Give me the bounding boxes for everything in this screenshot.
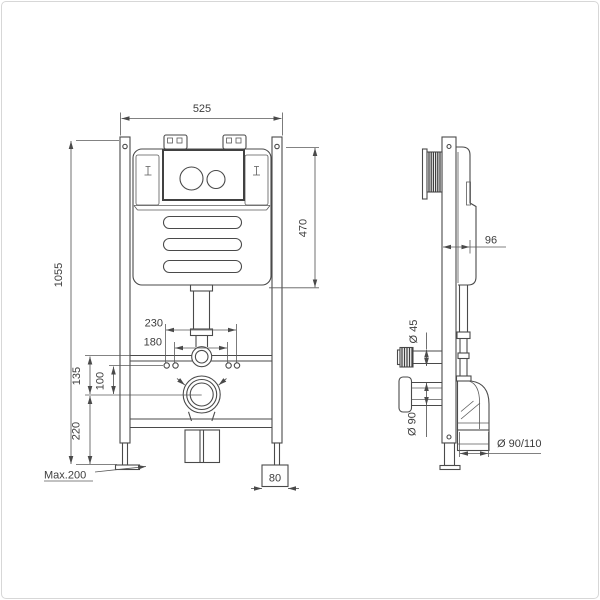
- elbow-base: [458, 430, 490, 451]
- dim-label-180: 180: [144, 337, 162, 349]
- fixing-bolt: [173, 363, 178, 368]
- dim-label-80: 80: [269, 473, 281, 485]
- dim-label-100: 100: [95, 372, 107, 390]
- frame-rail-right: [272, 137, 282, 443]
- dim-label-230: 230: [145, 318, 163, 330]
- foot-plate-side: [440, 466, 460, 470]
- front-view: 525 1055 470 230 180: [44, 103, 319, 489]
- foot-leg-left: [123, 443, 128, 465]
- pipe-connector-outer: [192, 347, 212, 367]
- outlet-arrow-left: [177, 379, 185, 386]
- outlet-arrow-right: [219, 379, 227, 386]
- dim-label-470: 470: [298, 219, 310, 237]
- cistern-side-outline: [456, 147, 476, 285]
- mounting-tab-left: [164, 135, 187, 149]
- frame-rail-side: [442, 137, 456, 443]
- dim-label-1055: 1055: [53, 263, 65, 287]
- collar-flange: [423, 149, 428, 199]
- outlet-ring-outer: [183, 376, 220, 413]
- technical-drawing-page: 525 1055 470 230 180: [0, 0, 600, 600]
- pipe-coupling-side: [457, 332, 470, 339]
- dim-label-d90-110: Ø 90/110: [497, 438, 541, 450]
- pipe-flange: [191, 285, 213, 291]
- cistern-front: [133, 135, 271, 285]
- dim-label-135: 135: [71, 367, 83, 385]
- outlet-connector: [399, 377, 442, 412]
- dim-label-d90: Ø 90: [407, 412, 419, 436]
- pipe-joint-side: [458, 353, 469, 359]
- water-inlet-connector: [398, 348, 443, 368]
- fixing-bolt: [234, 363, 239, 368]
- dim-label-d45: Ø 45: [408, 320, 420, 344]
- foot-leg-right: [275, 443, 280, 466]
- outlet-flange: [399, 377, 412, 412]
- dim-label-96: 96: [485, 235, 497, 247]
- flush-plate: [163, 150, 244, 200]
- frame-rail-left: [120, 137, 130, 443]
- dimensions-side: 96 Ø 45 Ø 90 Ø 90/110: [407, 235, 542, 458]
- dim-label-220: 220: [71, 422, 83, 440]
- dim-label-max-foot: Max.200: [44, 470, 86, 482]
- waste-elbow: [457, 376, 490, 451]
- mounting-tab-right: [223, 135, 246, 149]
- waste-bend-housing: [185, 430, 220, 463]
- elbow-flange: [457, 376, 472, 381]
- flush-plate-collar: [423, 149, 443, 199]
- fixing-bolt: [226, 363, 231, 368]
- dim-label-525: 525: [193, 103, 211, 115]
- cistern-side: [456, 147, 476, 376]
- cistern-frame-technical-drawing: 525 1055 470 230 180: [0, 0, 600, 600]
- fixing-bolt: [164, 363, 169, 368]
- waste-outlet-front: [164, 363, 240, 463]
- foot-leg-side: [445, 443, 455, 466]
- side-view: 96 Ø 45 Ø 90 Ø 90/110: [398, 137, 542, 470]
- flush-pipe: [191, 285, 213, 367]
